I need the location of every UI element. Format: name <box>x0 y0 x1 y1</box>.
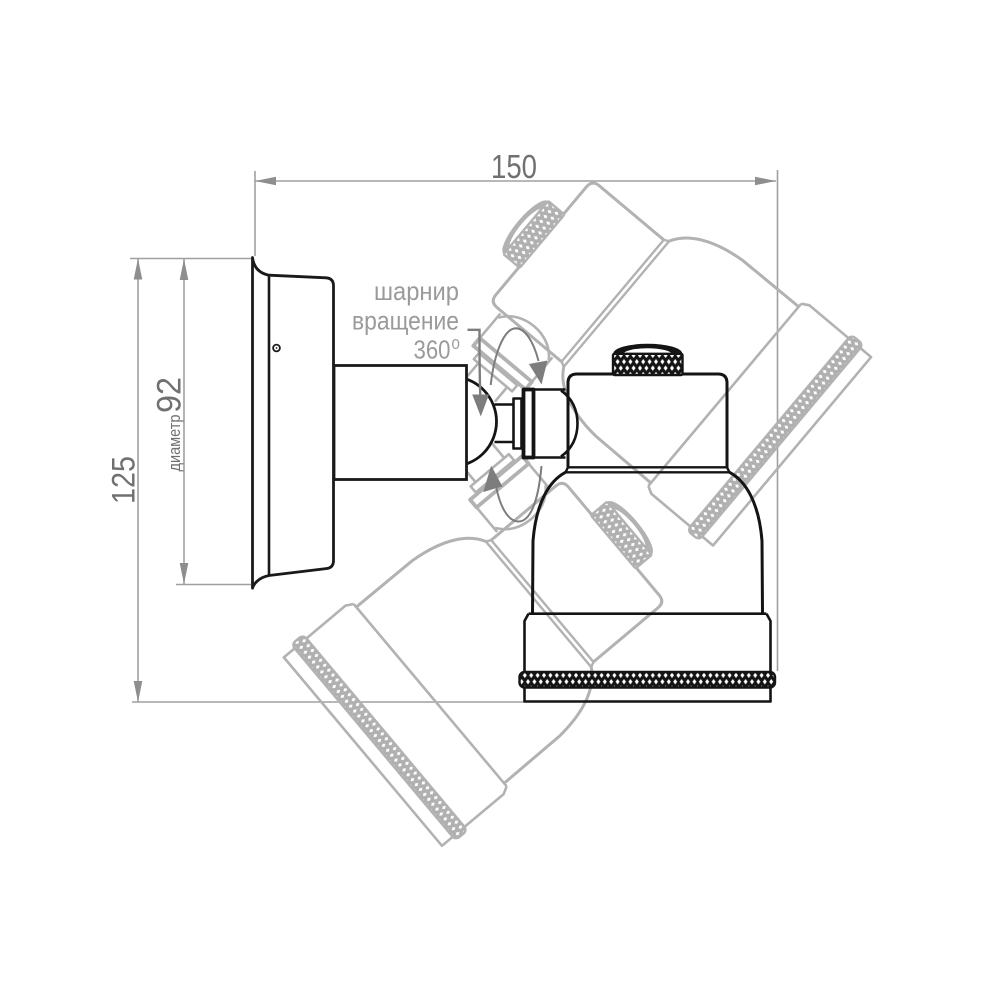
svg-text:92: 92 <box>151 377 189 413</box>
svg-text:360: 360 <box>414 335 451 365</box>
svg-text:вращение: вращение <box>352 306 459 336</box>
svg-text:диаметр: диаметр <box>166 415 184 472</box>
svg-text:шарнир: шарнир <box>374 276 459 306</box>
svg-text:125: 125 <box>106 456 142 504</box>
svg-text:150: 150 <box>491 148 537 185</box>
svg-text:0: 0 <box>452 336 460 353</box>
